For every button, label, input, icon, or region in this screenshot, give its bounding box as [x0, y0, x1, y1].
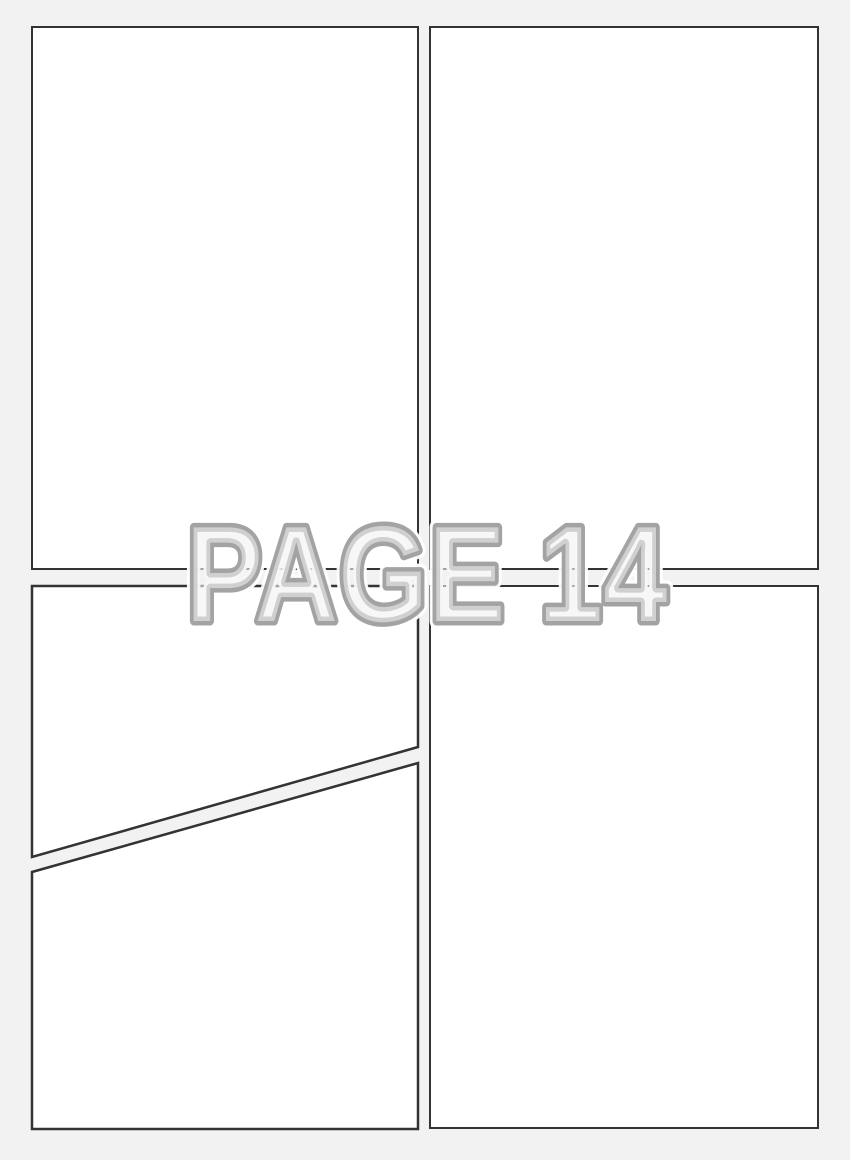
panel-bottom-right	[429, 585, 819, 1129]
comic-page-template: PAGE 14 PAGE 14	[0, 0, 850, 1160]
panel-bottom-left-group	[30, 584, 420, 1131]
panel-top-left	[31, 26, 419, 570]
panel-top-right	[429, 26, 819, 570]
